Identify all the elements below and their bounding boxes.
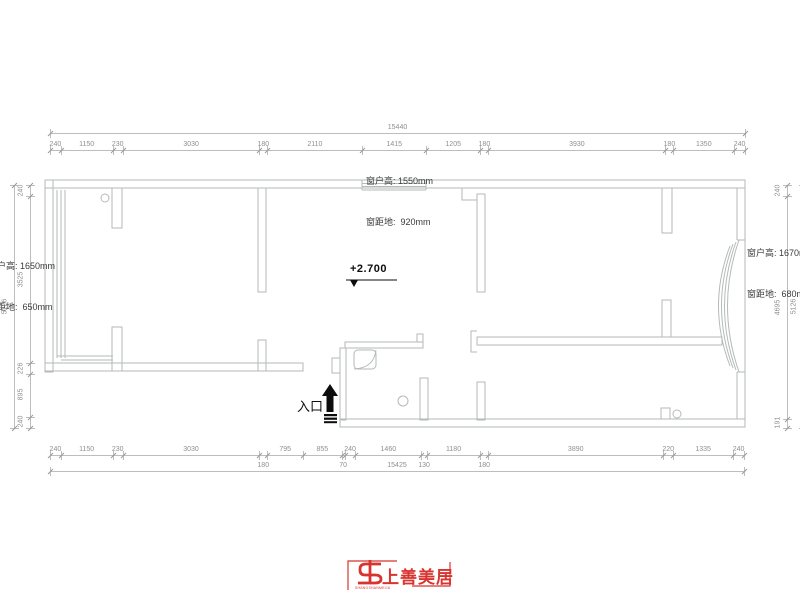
dim-line (50, 471, 744, 472)
dim-label: 240 (17, 397, 26, 447)
top-window-height: 窗户高: 1550mm (366, 175, 433, 189)
dim-label: 70 (318, 461, 368, 470)
floor-plan (0, 0, 800, 600)
logo-subtext: SHANGSHANMEIJU (355, 586, 390, 590)
dim-label: 3890 (551, 445, 601, 454)
cad-canvas: 1544024011502303030180211014151205180393… (0, 0, 800, 600)
entrance-door-notch (332, 358, 340, 373)
door-swing-symbol (354, 350, 376, 369)
dim-label: 180 (459, 140, 509, 149)
dim-label: 2110 (290, 140, 340, 149)
dim-label: 3030 (166, 445, 216, 454)
top-window-sill: 窗距地: 920mm (366, 216, 433, 230)
right-window-height: 窗户高: 1670mm (747, 247, 800, 261)
left-window-sill: 窗距地: 650mm (0, 301, 55, 315)
entrance-label: 入口 (297, 396, 323, 415)
dim-label: 180 (459, 461, 509, 470)
logo-name: 上善美居 (382, 563, 454, 588)
bay-window-symbol (719, 240, 746, 372)
dim-label: 15425 (372, 461, 422, 470)
dim-line (50, 455, 744, 456)
right-window-annotation: 窗户高: 1670mm 窗距地: 680mm (747, 220, 800, 328)
dim-label: 240 (714, 445, 764, 454)
dim-line (50, 133, 745, 134)
dim-label: 15440 (373, 123, 423, 132)
dim-label: 230 (93, 445, 143, 454)
left-window-annotation: 窗户高: 1650mm 窗距地: 650mm (0, 233, 55, 341)
dim-label: 1180 (429, 445, 479, 454)
right-window-sill: 窗距地: 680mm (747, 288, 800, 302)
top-window-annotation: 窗户高: 1550mm 窗距地: 920mm (366, 148, 433, 256)
dim-label: 240 (17, 165, 26, 215)
dim-label: 3030 (166, 140, 216, 149)
dim-label: 191 (774, 398, 783, 448)
left-window-height: 窗户高: 1650mm (0, 260, 55, 274)
elevation-marker-icon (346, 280, 397, 287)
dim-label: 240 (774, 165, 783, 215)
left-window-symbol (57, 190, 113, 360)
entrance-arrow-icon (322, 384, 338, 423)
dim-label: 3930 (552, 140, 602, 149)
dim-label: 1460 (363, 445, 413, 454)
dim-label: 180 (238, 461, 288, 470)
elevation-label: +2.700 (350, 263, 387, 275)
dim-label: 240 (715, 140, 765, 149)
logo-glyph-icon (358, 560, 381, 583)
dim-label: 230 (93, 140, 143, 149)
dim-label: 180 (238, 140, 288, 149)
